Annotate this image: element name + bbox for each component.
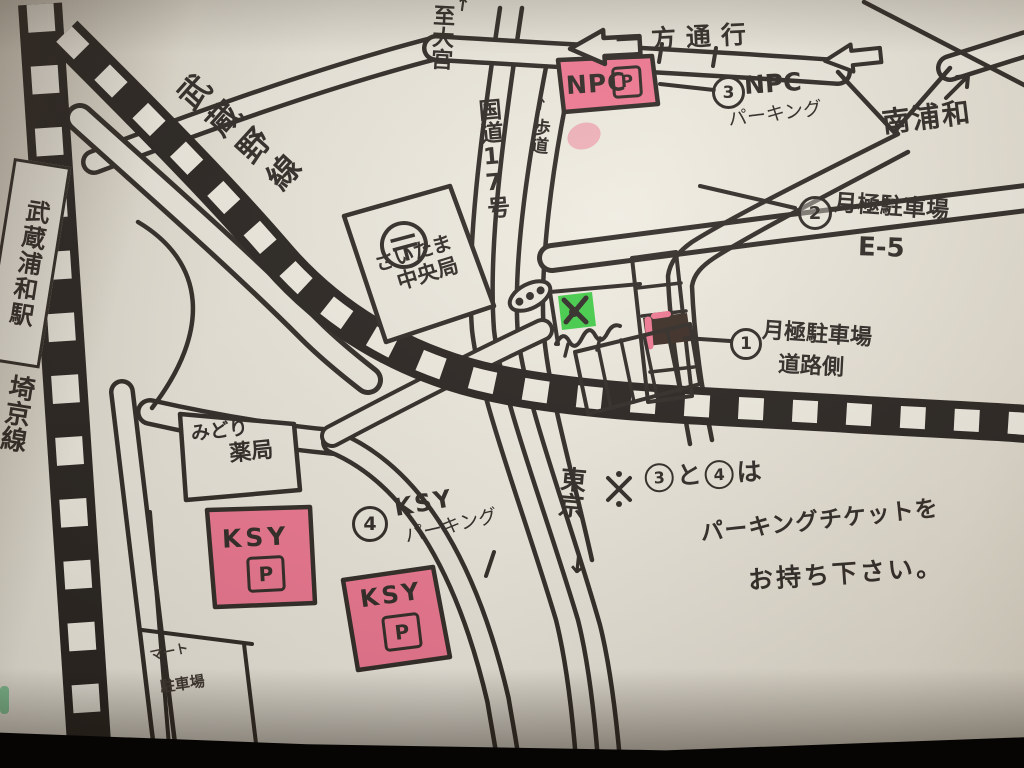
leader-line-p3 <box>660 84 714 90</box>
parking1-number-badge: 1 <box>730 328 762 360</box>
station-label: 武蔵浦和駅 <box>3 197 51 330</box>
sidewalk-label: 歩道 <box>526 117 550 155</box>
p-mark-badge: P <box>246 555 286 593</box>
parking1-number: 1 <box>740 334 752 354</box>
station-plaza-arc <box>138 222 193 408</box>
parking2-number: 2 <box>809 203 822 224</box>
note-number-4: 4 <box>713 465 725 485</box>
parking3-number-badge: 3 <box>712 76 745 109</box>
leader-line-p2 <box>700 186 795 208</box>
p-mark-badge: P <box>381 612 423 652</box>
reference-mark-icon <box>608 471 630 507</box>
ksy-box1-label: KSY <box>221 522 290 554</box>
parking3-number: 3 <box>723 83 735 103</box>
midori-pharmacy-label: みどり 薬局 <box>190 416 275 471</box>
parking4-number-badge: 4 <box>352 506 388 542</box>
parking1-sub: 道路側 <box>777 352 844 381</box>
parking2-sub: E-5 <box>857 233 905 265</box>
pink-smear <box>564 118 605 154</box>
traffic-signal-icon <box>505 275 555 317</box>
tokyo-label: 東京 <box>552 465 586 519</box>
to-omiya-label: 至大宮 <box>426 3 455 70</box>
p-mark: P <box>393 619 410 645</box>
note-number-3-badge: 3 <box>644 462 674 492</box>
parking4-number: 4 <box>363 513 376 535</box>
p-mark: P <box>258 562 274 587</box>
tick-mark <box>486 552 494 576</box>
parking2-number-badge: 2 <box>798 196 832 230</box>
parking3-name: NPC <box>743 68 802 101</box>
note-number-3: 3 <box>653 468 665 488</box>
p-mark-badge: P <box>611 65 643 99</box>
note-number-4-badge: 4 <box>704 459 734 489</box>
note-suffix: は <box>736 458 762 488</box>
tokyo-arrow: ↓ <box>564 547 591 581</box>
midori-line2: 薬局 <box>228 437 274 467</box>
green-smudge <box>0 686 9 714</box>
note-line1: 3 と 4 は <box>644 458 762 493</box>
note-and: と <box>676 461 702 491</box>
omiya-arrow: ↑ <box>454 0 472 18</box>
map-photo: 武蔵浦和駅 埼京線 武蔵野線 ↑ 至大宮 国道17号 ↑ 歩道 東京 ↓ 一方通… <box>0 0 1024 768</box>
p-mark: P <box>620 72 634 93</box>
